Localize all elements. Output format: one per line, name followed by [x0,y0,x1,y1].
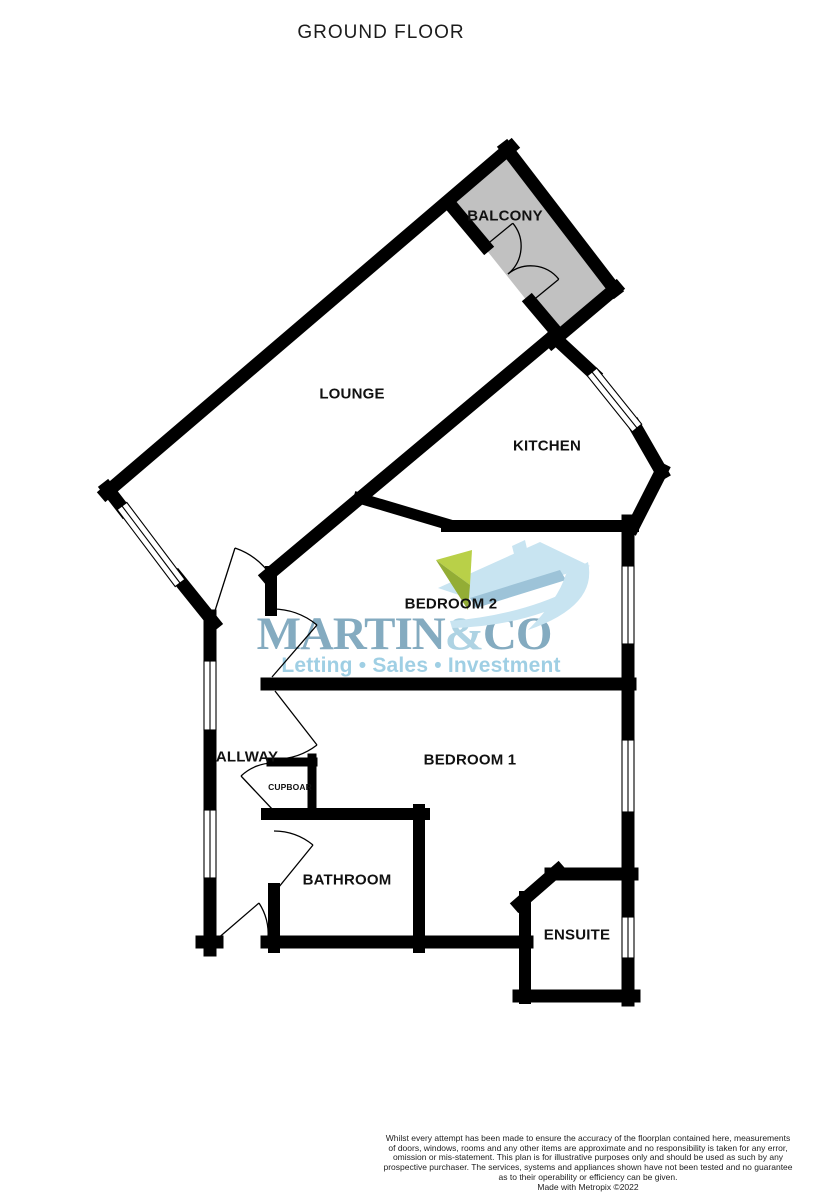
disclaimer: Whilst every attempt has been made to en… [368,1134,808,1192]
entrance-door [216,903,268,940]
window-hall-west-lower [204,810,216,878]
window-hall-diagonal [117,502,185,586]
room-label-balcony: BALCONY [467,208,543,225]
room-label-kitchen: KITCHEN [513,438,581,455]
window-ensuite-east [622,917,634,958]
metropix-credit: Made with Metropix ©2022 [368,1183,808,1193]
bedroom1-door [274,691,317,759]
martinco-house-icon [436,540,590,630]
window-bedroom2-east [622,566,634,644]
floorplan-page: { "title": "GROUND FLOOR", "rooms": { "b… [0,0,824,1200]
room-label-bedroom1: BEDROOM 1 [424,752,517,769]
window-bedroom1-east [622,740,634,812]
window-hall-west-upper [204,661,216,730]
room-label-bathroom: BATHROOM [303,872,392,889]
page-title: GROUND FLOOR [297,22,464,44]
room-label-bedroom2: BEDROOM 2 [405,596,498,613]
room-label-cupboard: CUPBOAR [268,782,312,792]
room-label-lounge: LOUNGE [319,386,384,403]
room-label-ensuite: ENSUITE [544,927,610,944]
lounge-hall-door [213,548,272,617]
window-kitchen-diagonal [587,368,641,432]
bedroom2-door [271,609,317,677]
room-label-hallway: ALLWAY [216,749,278,766]
